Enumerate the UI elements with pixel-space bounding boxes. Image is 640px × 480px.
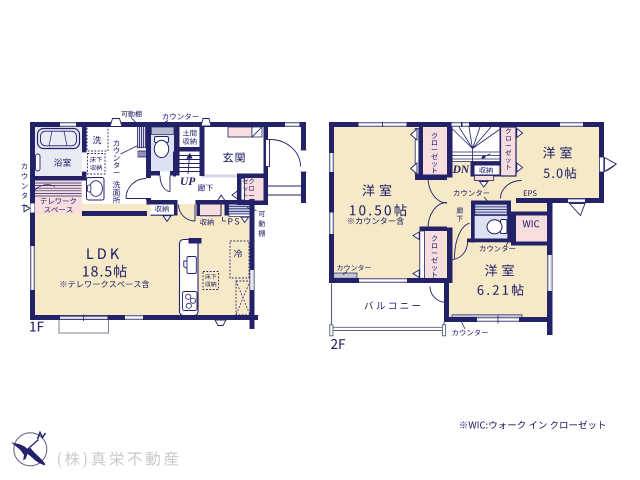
svg-text:DN: DN: [452, 164, 470, 176]
svg-text:UP: UP: [180, 176, 196, 188]
